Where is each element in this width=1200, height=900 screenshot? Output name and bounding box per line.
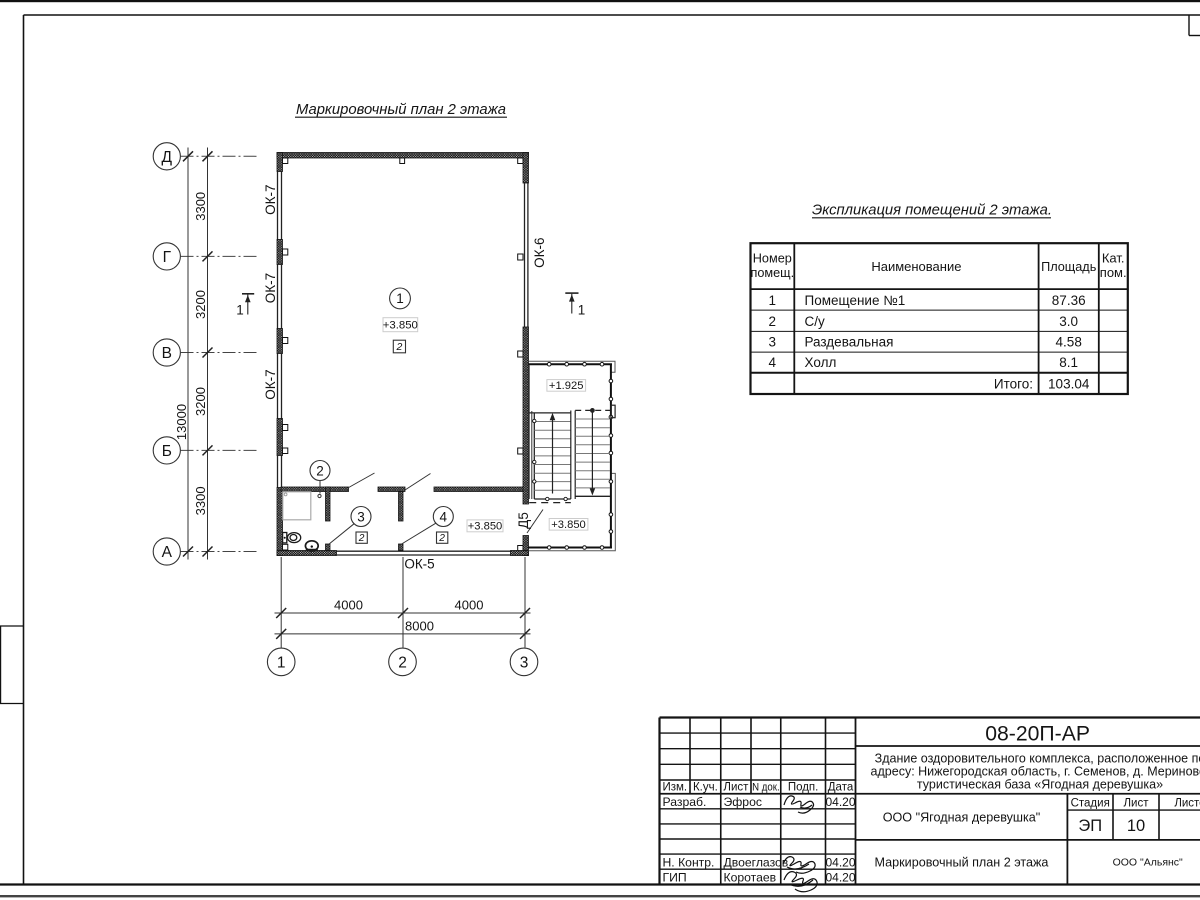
svg-text:ОК-6: ОК-6 bbox=[532, 238, 547, 268]
svg-text:1: 1 bbox=[396, 291, 404, 306]
svg-text:Помещение №1: Помещение №1 bbox=[805, 293, 906, 308]
svg-text:87.36: 87.36 bbox=[1052, 293, 1086, 308]
svg-text:Маркировочный план 2 этажа: Маркировочный план 2 этажа bbox=[875, 856, 1049, 870]
svg-text:08-20П-АР: 08-20П-АР bbox=[985, 723, 1090, 746]
svg-text:N док.: N док. bbox=[752, 782, 780, 794]
svg-text:3: 3 bbox=[357, 509, 365, 524]
svg-text:2: 2 bbox=[438, 533, 445, 544]
svg-text:13000: 13000 bbox=[174, 404, 189, 440]
svg-text:Эфрос: Эфрос bbox=[724, 795, 762, 809]
svg-text:пом.: пом. bbox=[1100, 265, 1127, 280]
svg-text:04.20: 04.20 bbox=[825, 870, 855, 884]
svg-text:ООО "Альянс": ООО "Альянс" bbox=[1113, 857, 1183, 869]
svg-text:Маркировочный план 2 этажа: Маркировочный план 2 этажа bbox=[296, 102, 506, 118]
svg-text:Здание оздоровительного компле: Здание оздоровительного комплекса, распо… bbox=[875, 752, 1200, 766]
svg-text:3200: 3200 bbox=[193, 387, 208, 416]
svg-text:10: 10 bbox=[1127, 817, 1145, 835]
svg-text:Площадь: Площадь bbox=[1041, 260, 1097, 274]
svg-text:ГИП: ГИП bbox=[663, 870, 687, 884]
svg-text:3200: 3200 bbox=[193, 290, 208, 319]
svg-text:2: 2 bbox=[769, 314, 777, 329]
svg-text:8000: 8000 bbox=[405, 619, 434, 634]
svg-text:Листов: Листов bbox=[1174, 797, 1200, 809]
svg-text:103.04: 103.04 bbox=[1048, 376, 1090, 391]
svg-text:Изм.: Изм. bbox=[662, 782, 687, 794]
svg-text:2: 2 bbox=[358, 533, 365, 544]
svg-text:Коротаев: Коротаев bbox=[724, 870, 777, 884]
svg-text:4.58: 4.58 bbox=[1056, 335, 1082, 350]
svg-text:К.уч.: К.уч. bbox=[693, 782, 718, 794]
svg-text:+3.850: +3.850 bbox=[551, 519, 586, 531]
svg-text:04.20: 04.20 bbox=[825, 795, 855, 809]
svg-text:Д: Д bbox=[162, 149, 173, 166]
svg-text:Разраб.: Разраб. bbox=[663, 795, 707, 809]
svg-text:2: 2 bbox=[316, 463, 324, 478]
svg-text:3: 3 bbox=[520, 654, 529, 671]
svg-text:4000: 4000 bbox=[455, 598, 484, 613]
svg-text:4: 4 bbox=[769, 355, 777, 370]
svg-text:Д5: Д5 bbox=[516, 512, 531, 529]
svg-text:ЭП: ЭП bbox=[1078, 817, 1102, 835]
svg-text:Б: Б bbox=[162, 443, 172, 460]
svg-text:2: 2 bbox=[395, 341, 402, 353]
svg-text:Итого:: Итого: bbox=[994, 376, 1033, 391]
svg-text:Лист: Лист bbox=[723, 782, 749, 794]
svg-text:+3.850: +3.850 bbox=[468, 520, 503, 532]
svg-text:ООО "Ягодная деревушка": ООО "Ягодная деревушка" bbox=[883, 811, 1041, 825]
svg-text:ОК-7: ОК-7 bbox=[263, 273, 278, 303]
svg-text:ОК-5: ОК-5 bbox=[404, 557, 434, 572]
svg-text:С/у: С/у bbox=[805, 314, 826, 329]
svg-text:04.20: 04.20 bbox=[825, 855, 855, 869]
svg-text:1: 1 bbox=[236, 303, 244, 318]
svg-text:1: 1 bbox=[277, 654, 286, 671]
svg-text:1: 1 bbox=[769, 293, 777, 308]
svg-text:4000: 4000 bbox=[334, 598, 363, 613]
svg-text:адресу: Нижегородская область,: адресу: Нижегородская область, г. Семено… bbox=[871, 765, 1200, 779]
svg-text:3.0: 3.0 bbox=[1059, 314, 1078, 329]
svg-text:Кат.: Кат. bbox=[1102, 251, 1125, 266]
svg-text:Г: Г bbox=[163, 249, 172, 266]
svg-text:Подп.: Подп. bbox=[788, 782, 819, 794]
svg-text:Раздевальная: Раздевальная bbox=[805, 335, 894, 350]
svg-text:1: 1 bbox=[578, 303, 586, 318]
svg-text:ОК-7: ОК-7 bbox=[263, 369, 278, 399]
svg-text:ОК-7: ОК-7 bbox=[263, 185, 278, 215]
svg-text:помещ.: помещ. bbox=[750, 266, 794, 280]
svg-text:+3.850: +3.850 bbox=[383, 319, 418, 331]
svg-text:А: А bbox=[162, 544, 173, 561]
svg-text:Наименование: Наименование bbox=[871, 259, 961, 274]
svg-text:3300: 3300 bbox=[193, 192, 208, 221]
svg-text:Двоеглазов: Двоеглазов bbox=[724, 855, 789, 869]
svg-text:Лист: Лист bbox=[1124, 797, 1150, 809]
svg-text:2: 2 bbox=[398, 654, 407, 671]
svg-text:Номер: Номер bbox=[753, 252, 792, 266]
svg-text:Холл: Холл bbox=[805, 355, 837, 370]
svg-text:Дата: Дата bbox=[828, 782, 854, 794]
svg-text:туристическая база «Ягодная де: туристическая база «Ягодная деревушка» bbox=[917, 778, 1163, 792]
svg-text:Н. Контр.: Н. Контр. bbox=[663, 855, 715, 869]
svg-text:В: В bbox=[162, 345, 172, 362]
svg-text:Экспликация помещений 2 этажа.: Экспликация помещений 2 этажа. bbox=[812, 203, 1052, 219]
svg-text:+1.925: +1.925 bbox=[549, 380, 584, 392]
svg-text:3: 3 bbox=[769, 335, 777, 350]
svg-text:Стадия: Стадия bbox=[1071, 797, 1110, 809]
svg-text:3300: 3300 bbox=[193, 486, 208, 515]
svg-text:4: 4 bbox=[440, 509, 448, 524]
svg-text:8.1: 8.1 bbox=[1059, 355, 1078, 370]
